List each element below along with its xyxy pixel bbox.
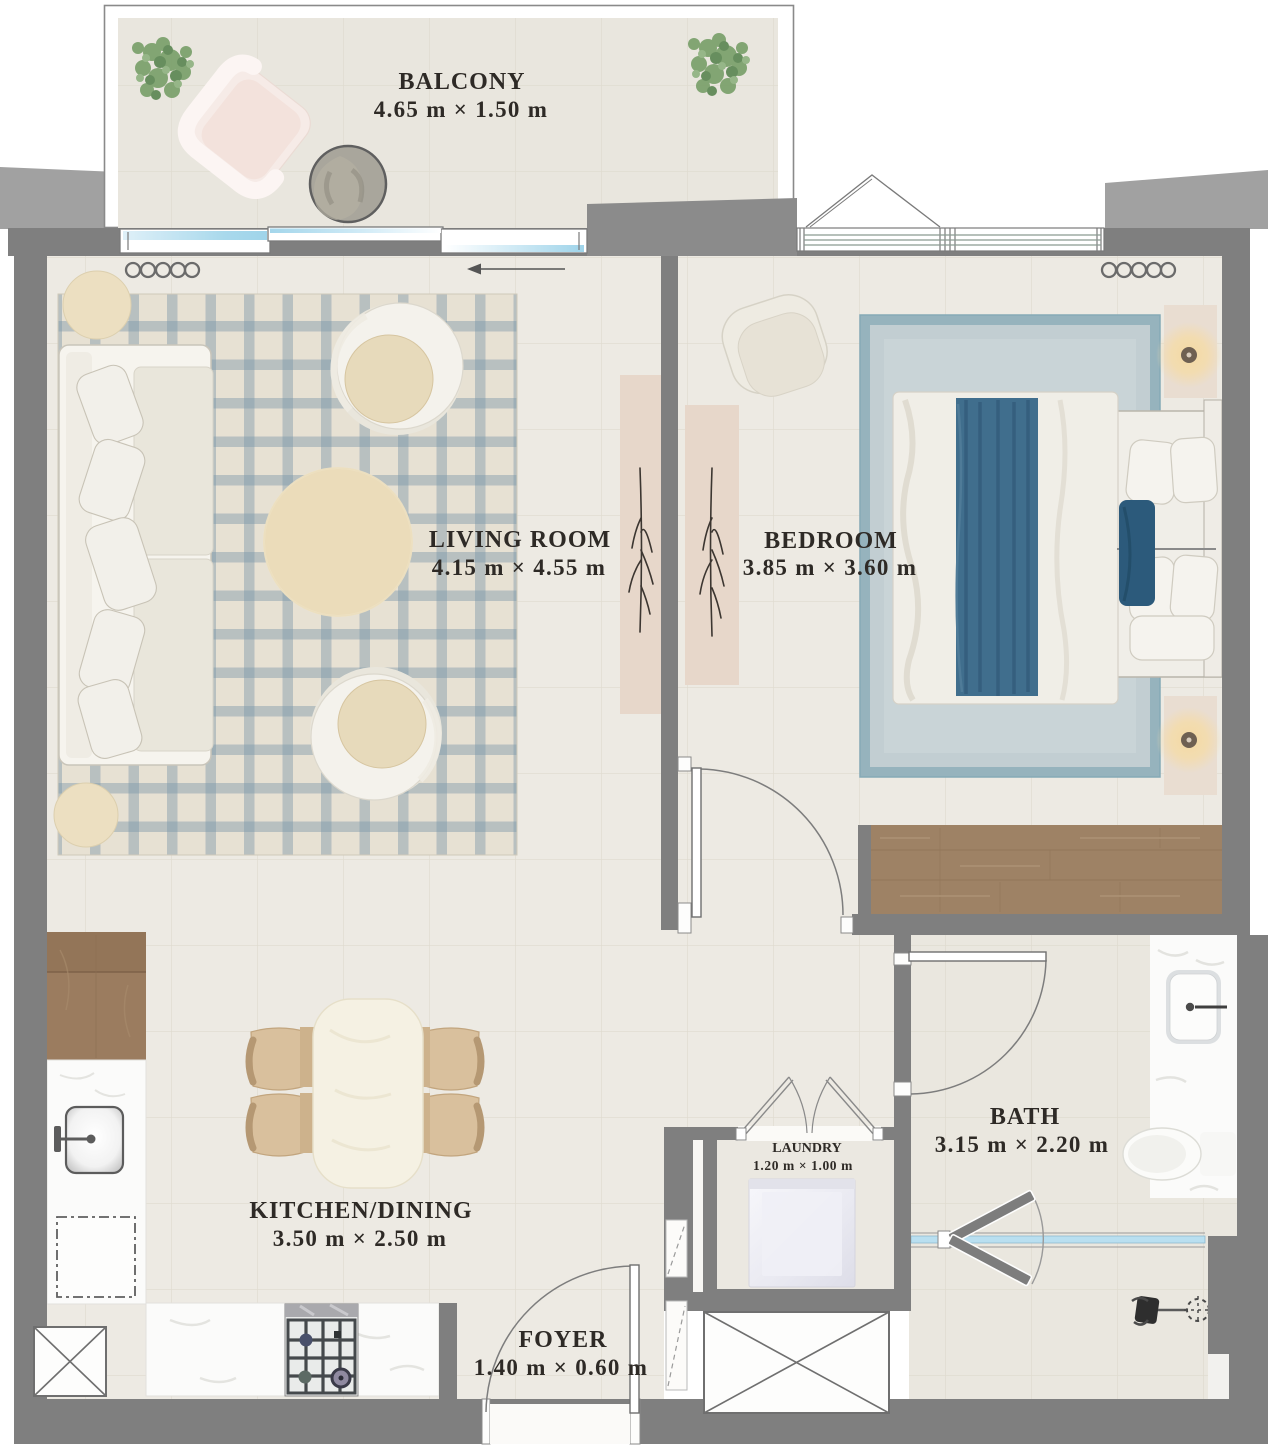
- svg-text:3.50 m × 2.50 m: 3.50 m × 2.50 m: [273, 1226, 447, 1251]
- svg-text:1.20 m × 1.00 m: 1.20 m × 1.00 m: [753, 1158, 853, 1173]
- svg-text:BATH: BATH: [990, 1104, 1060, 1130]
- svg-text:BALCONY: BALCONY: [398, 69, 525, 95]
- svg-text:FOYER: FOYER: [519, 1327, 608, 1353]
- svg-text:KITCHEN/DINING: KITCHEN/DINING: [249, 1198, 472, 1224]
- svg-text:3.15 m × 2.20 m: 3.15 m × 2.20 m: [935, 1132, 1109, 1157]
- svg-text:4.15 m × 4.55 m: 4.15 m × 4.55 m: [432, 555, 606, 580]
- svg-text:3.85 m × 3.60 m: 3.85 m × 3.60 m: [743, 555, 917, 580]
- svg-text:4.65 m × 1.50 m: 4.65 m × 1.50 m: [374, 97, 548, 122]
- svg-text:BEDROOM: BEDROOM: [764, 528, 898, 554]
- svg-text:LAUNDRY: LAUNDRY: [772, 1141, 842, 1156]
- svg-text:LIVING ROOM: LIVING ROOM: [429, 527, 611, 553]
- svg-text:1.40 m × 0.60 m: 1.40 m × 0.60 m: [474, 1355, 648, 1380]
